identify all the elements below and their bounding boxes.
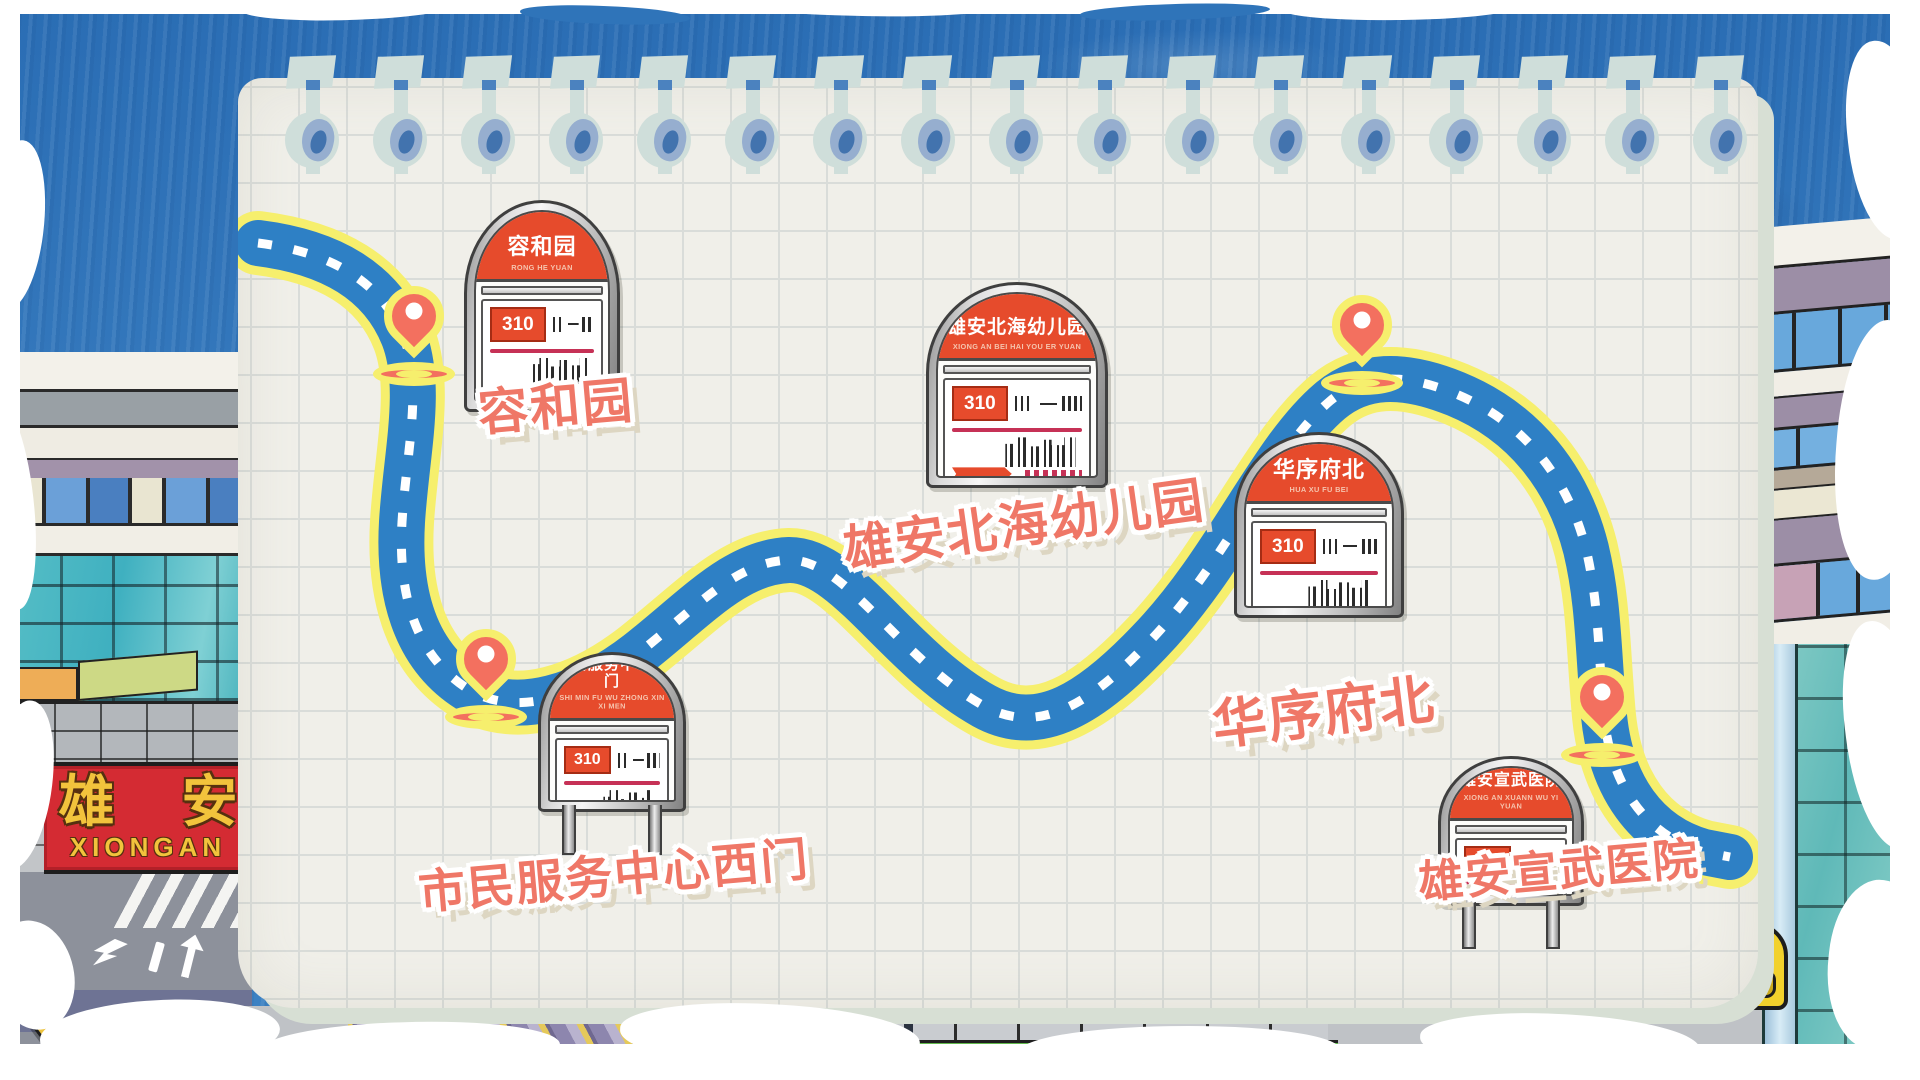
building-band xyxy=(8,392,244,428)
zebra-crossing xyxy=(114,874,252,928)
green-strip xyxy=(778,1040,1338,1056)
sign-body: 310 xyxy=(943,378,1091,478)
road-arrow-marking xyxy=(90,935,129,970)
city-sign-en: XIONGAN xyxy=(70,832,226,863)
red-dot-row xyxy=(1025,470,1082,478)
barcode-block xyxy=(1005,437,1075,467)
building-band xyxy=(8,458,244,478)
glass-reflection xyxy=(78,651,198,701)
location-pin-icon xyxy=(1554,667,1650,767)
barcode-strip xyxy=(618,753,660,768)
divider-line xyxy=(952,428,1082,432)
barcode-strip xyxy=(1015,396,1082,411)
pin-base-ring xyxy=(1321,371,1403,395)
sign-panel: 雄安北海幼儿园 XIONG AN BEI HAI YOU ER YUAN 310 xyxy=(936,292,1098,478)
sign-panel: 华序府北 HUA XU FU BEI 310 xyxy=(1244,442,1394,608)
pin-head xyxy=(1332,295,1392,355)
stop-pinyin: XIONG AN BEI HAI YOU ER YUAN xyxy=(948,343,1086,351)
bus-stop-sign-shimin: 市民服务中心西门 SHI MIN FU WU ZHONG XIN XI MEN … xyxy=(538,652,686,812)
bus-stop-sign-beihai: 雄安北海幼儿园 XIONG AN BEI HAI YOU ER YUAN 310 xyxy=(926,282,1108,488)
sign-separator xyxy=(943,365,1091,374)
building-band xyxy=(8,526,244,556)
route-number-badge: 310 xyxy=(490,307,546,342)
location-pin-icon xyxy=(366,286,462,386)
pin-base-ring xyxy=(445,705,527,729)
red-arrow-ribbon xyxy=(952,467,1012,478)
location-pin-icon xyxy=(438,629,534,729)
sign-header: 容和园 RONG HE YUAN xyxy=(476,212,608,282)
lane-dash xyxy=(116,1037,133,1068)
road-arrow-marking xyxy=(173,932,207,980)
stop-name: 雄安宣武医院 xyxy=(1454,772,1568,790)
lane-dash xyxy=(148,941,165,972)
sign-leg xyxy=(562,805,576,855)
route-number-badge: 310 xyxy=(564,746,611,774)
building-glass-wall xyxy=(8,556,244,704)
pin-dot xyxy=(1594,684,1611,701)
stop-pinyin: SHI MIN FU WU ZHONG XIN XI MEN xyxy=(559,694,666,711)
pin-base-ring xyxy=(373,362,455,386)
pin-head xyxy=(456,629,516,689)
sign-panel: 市民服务中心西门 SHI MIN FU WU ZHONG XIN XI MEN … xyxy=(548,662,676,802)
stop-name: 华序府北 xyxy=(1250,458,1388,482)
pin-head xyxy=(1572,667,1632,727)
city-sign-cn: 雄安 xyxy=(59,774,238,830)
pin-dot xyxy=(478,646,495,663)
street-scene-left xyxy=(0,872,252,1080)
city-gate-sign: 雄安 XIONGAN xyxy=(44,762,252,874)
divider-line xyxy=(564,781,660,785)
route-number-badge: 310 xyxy=(952,386,1008,421)
sign-body: 310 xyxy=(555,738,669,802)
stop-label-ronghenyuan: 容和园 xyxy=(476,375,636,438)
glass-reflection xyxy=(8,667,78,701)
barcode-strip xyxy=(553,317,594,332)
sign-header: 雄安北海幼儿园 XIONG AN BEI HAI YOU ER YUAN xyxy=(938,294,1096,361)
barcode-block xyxy=(1308,580,1372,608)
stop-pinyin: HUA XU FU BEI xyxy=(1256,485,1383,493)
bus-route-map-illustration: 雄安 XIONGAN xyxy=(0,0,1920,1080)
sign-separator xyxy=(555,725,669,734)
divider-line xyxy=(490,349,594,353)
building-band xyxy=(8,428,244,458)
city-sign-char: 安 xyxy=(181,774,237,830)
sign-header: 华序府北 HUA XU FU BEI xyxy=(1246,444,1392,504)
route-number-badge: 310 xyxy=(1260,529,1316,564)
barcode-block xyxy=(603,790,655,802)
building-band xyxy=(8,352,244,392)
location-pin-icon xyxy=(1314,295,1410,395)
pin-dot xyxy=(1354,312,1371,329)
sign-header: 市民服务中心西门 SHI MIN FU WU ZHONG XIN XI MEN xyxy=(550,664,674,721)
lane-dash xyxy=(192,1049,209,1080)
sign-frame: 雄安北海幼儿园 XIONG AN BEI HAI YOU ER YUAN 310 xyxy=(926,282,1108,488)
bus-stop-sign-huaxufubei: 华序府北 HUA XU FU BEI 310 xyxy=(1234,432,1404,618)
sign-header: 雄安宣武医院 XIONG AN XUANN WU YI YUAN xyxy=(1450,768,1572,821)
pin-dot xyxy=(406,303,423,320)
stop-pinyin: RONG HE YUAN xyxy=(485,263,599,271)
stop-name: 容和园 xyxy=(480,235,604,259)
sign-leg xyxy=(1546,899,1560,949)
sign-separator xyxy=(1251,508,1387,517)
divider-line xyxy=(1260,571,1378,575)
stop-name: 市民服务中心西门 xyxy=(554,662,670,690)
sign-frame: 市民服务中心西门 SHI MIN FU WU ZHONG XIN XI MEN … xyxy=(538,652,686,812)
stop-pinyin: XIONG AN XUANN WU YI YUAN xyxy=(1459,794,1564,811)
building-windows xyxy=(8,478,244,526)
city-sign-char: 雄 xyxy=(59,774,115,830)
sign-separator xyxy=(481,286,603,295)
sign-frame: 华序府北 HUA XU FU BEI 310 xyxy=(1234,432,1404,618)
sign-body: 310 xyxy=(1251,521,1387,608)
sign-separator xyxy=(1455,825,1567,834)
sign-panel: 容和园 RONG HE YUAN 310 xyxy=(474,210,610,402)
sign-leg xyxy=(1462,899,1476,949)
stop-name: 雄安北海幼儿园 xyxy=(942,318,1092,339)
pin-head xyxy=(384,286,444,346)
barcode-strip xyxy=(1323,539,1378,554)
